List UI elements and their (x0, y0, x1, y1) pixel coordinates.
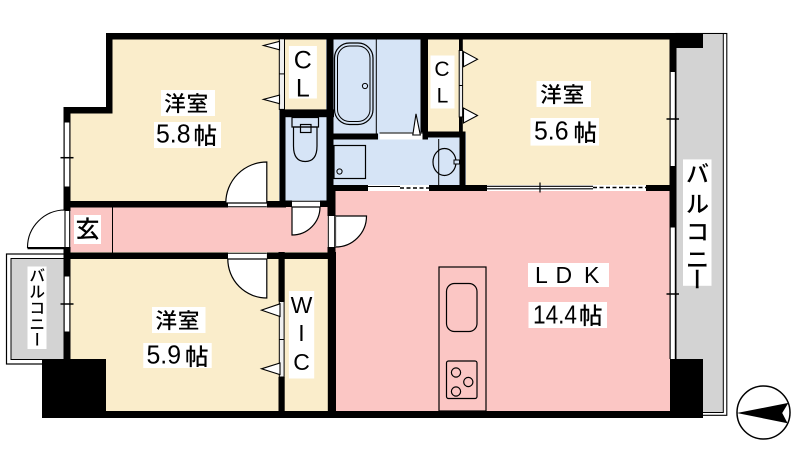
svg-text:C: C (294, 47, 312, 75)
svg-text:C: C (434, 58, 449, 81)
svg-text:5.6: 5.6 (534, 116, 569, 146)
svg-text:5.9: 5.9 (147, 340, 182, 370)
svg-text:5.8: 5.8 (156, 119, 191, 149)
svg-text:W: W (291, 292, 313, 318)
svg-text:I: I (298, 320, 304, 346)
svg-text:D: D (556, 262, 573, 288)
svg-text:K: K (584, 262, 600, 288)
svg-text:C: C (293, 349, 310, 375)
svg-text:14.4: 14.4 (533, 300, 577, 330)
svg-text:L: L (535, 262, 548, 288)
svg-text:L: L (437, 85, 449, 108)
svg-text:L: L (296, 75, 310, 103)
